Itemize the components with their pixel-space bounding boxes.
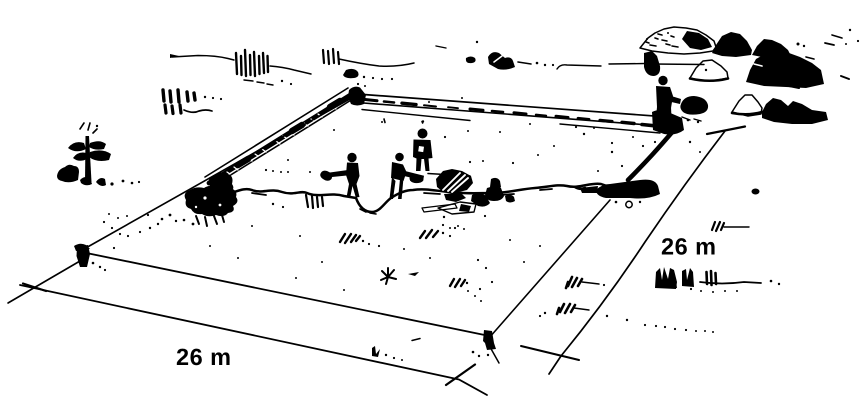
- svg-text:26 m: 26 m: [176, 344, 232, 370]
- svg-text:26 m: 26 m: [661, 233, 717, 259]
